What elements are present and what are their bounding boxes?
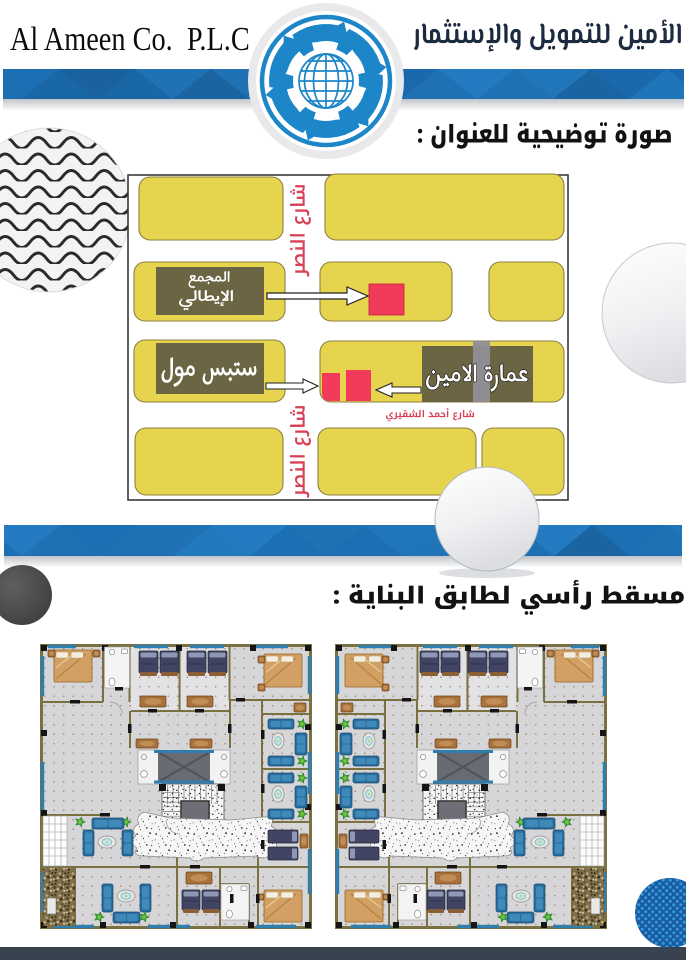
svg-text:Al Ameen Co. P.L.C: Al Ameen Co. P.L.C — [10, 20, 250, 58]
